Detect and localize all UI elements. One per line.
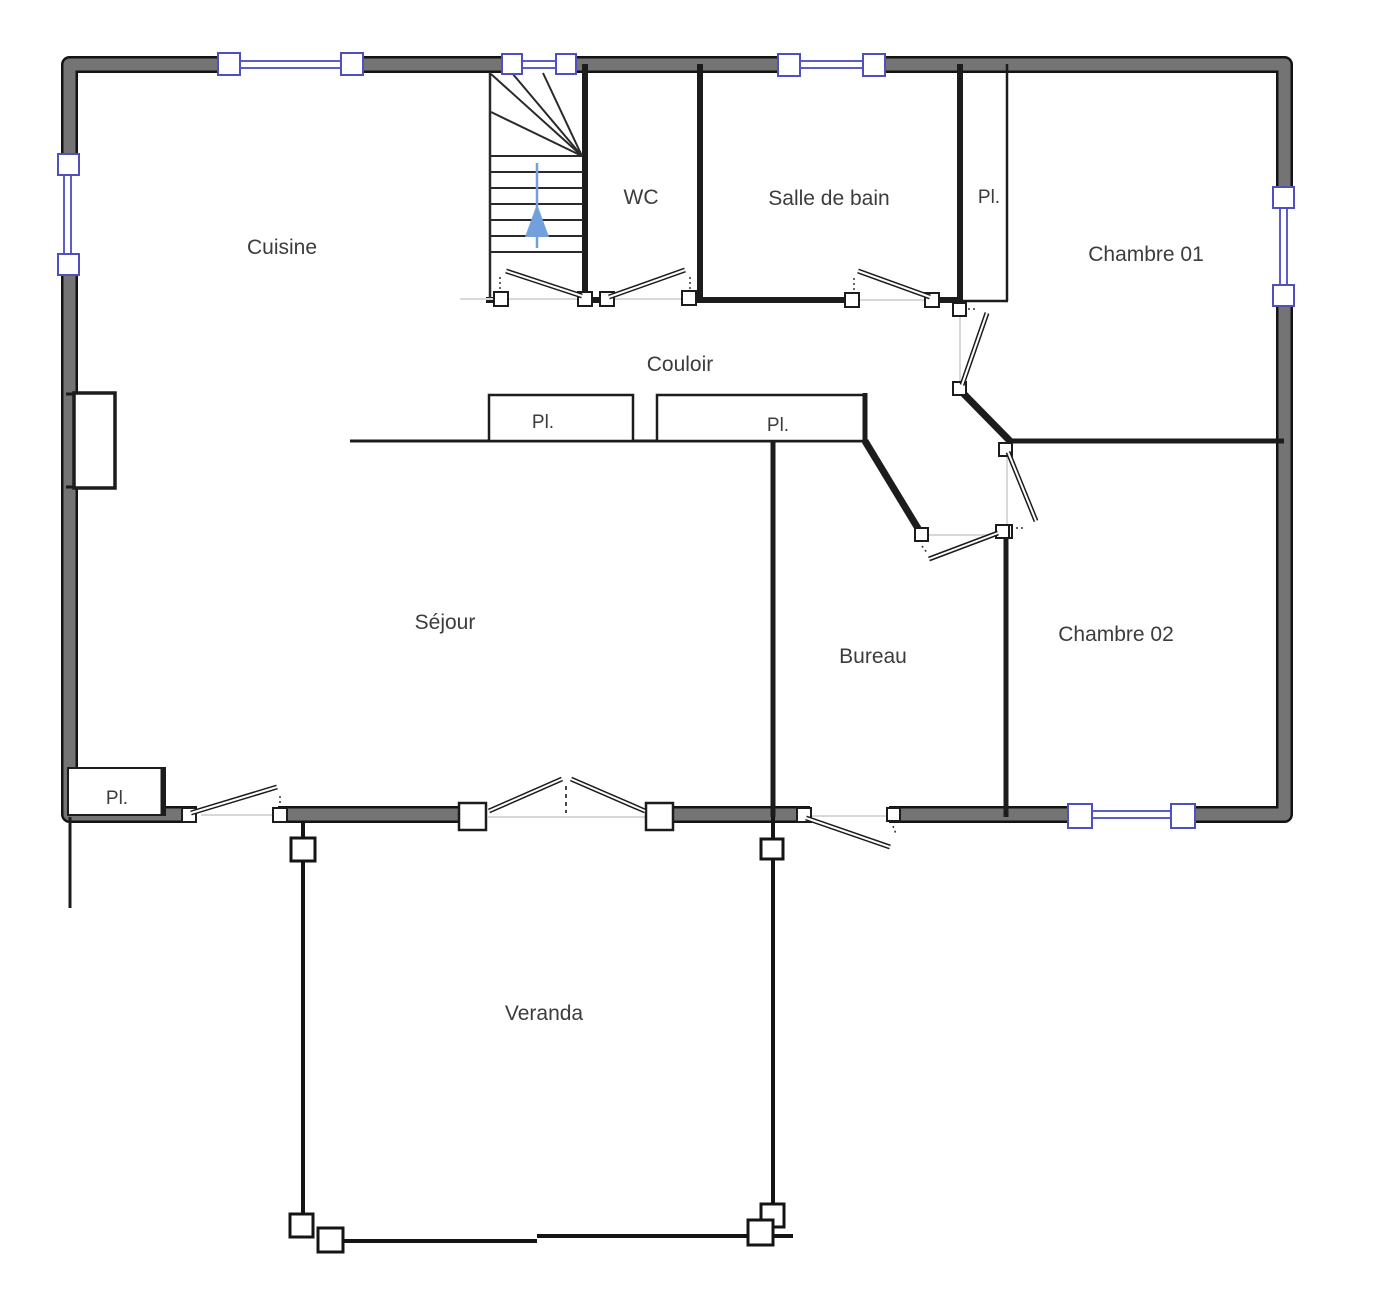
veranda-structure	[290, 817, 793, 1252]
closet-label-couloir-2: Pl.	[767, 415, 789, 436]
closet-couloir-2	[657, 395, 865, 441]
room-label-couloir: Couloir	[647, 353, 714, 376]
chimney-box	[74, 393, 115, 488]
door-salle-de-bain	[845, 271, 939, 307]
veranda-posts	[290, 838, 784, 1252]
room-label-wc: WC	[624, 186, 659, 209]
door-chambre01	[953, 303, 987, 395]
room-label-chambre01: Chambre 01	[1088, 243, 1204, 266]
door-stairs	[494, 271, 592, 306]
floor-plan-canvas: Cuisine WC Salle de bain Pl. Chambre 01 …	[0, 0, 1380, 1292]
stairs-up-arrow-icon	[525, 163, 549, 248]
closet-boxes	[66, 393, 865, 815]
doors	[182, 270, 1036, 847]
door-wc	[600, 270, 696, 306]
door-opening-lines	[201, 299, 1007, 817]
door-chambre02	[999, 443, 1036, 538]
closet-label-couloir-1: Pl.	[532, 412, 554, 433]
staircase	[490, 72, 583, 300]
room-label-salle-de-bain: Salle de bain	[768, 187, 889, 210]
closet-label-haut: Pl.	[978, 187, 1000, 208]
closet-label-entree: Pl.	[106, 788, 128, 809]
room-label-cuisine: Cuisine	[247, 236, 317, 259]
room-labels: Cuisine WC Salle de bain Pl. Chambre 01 …	[106, 186, 1204, 1025]
door-bureau-nord	[915, 525, 1009, 559]
floor-plan-page: Cuisine WC Salle de bain Pl. Chambre 01 …	[0, 0, 1380, 1292]
interior-walls	[70, 64, 1284, 908]
room-label-chambre02: Chambre 02	[1058, 623, 1174, 646]
room-label-veranda: Veranda	[505, 1002, 584, 1025]
room-label-sejour: Séjour	[415, 611, 476, 634]
closet-couloir-1	[489, 395, 633, 441]
room-label-bureau: Bureau	[839, 645, 907, 668]
